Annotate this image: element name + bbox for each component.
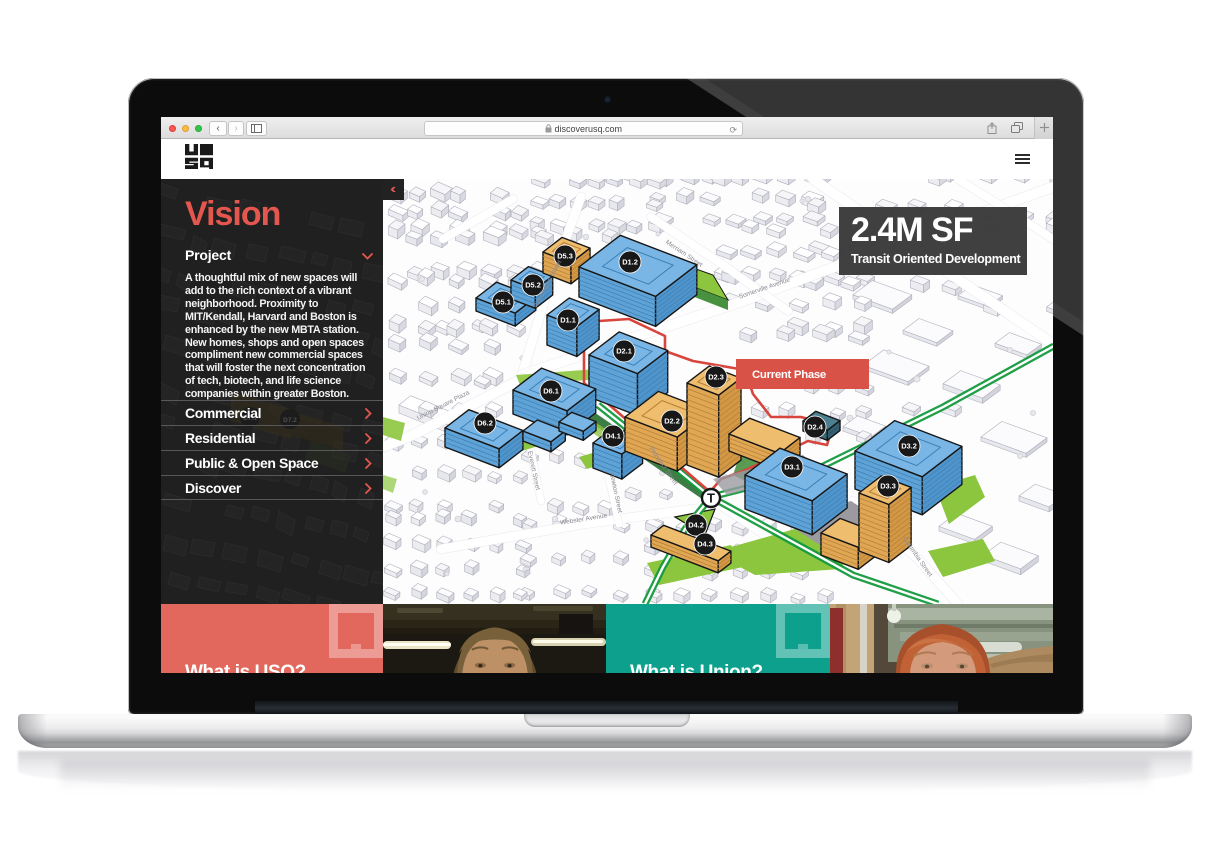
svg-text:D1.1: D1.1 (560, 316, 576, 325)
svg-text:D2.2: D2.2 (664, 417, 680, 426)
svg-text:2.4M SF: 2.4M SF (851, 211, 973, 249)
svg-text:D5.3: D5.3 (557, 252, 573, 261)
svg-text:D2.3: D2.3 (708, 373, 724, 382)
svg-text:D3.1: D3.1 (784, 463, 800, 472)
svg-text:D1.2: D1.2 (622, 258, 638, 267)
svg-text:D2.1: D2.1 (616, 347, 632, 356)
svg-text:D4.2: D4.2 (688, 521, 704, 530)
svg-text:D3.3: D3.3 (880, 482, 896, 491)
svg-text:T: T (707, 491, 715, 506)
svg-text:D6.2: D6.2 (477, 419, 493, 428)
svg-text:D2.4: D2.4 (807, 423, 824, 432)
svg-text:D5.1: D5.1 (495, 298, 511, 307)
svg-text:D3.2: D3.2 (901, 442, 917, 451)
svg-text:D4.3: D4.3 (697, 540, 713, 549)
svg-text:D5.2: D5.2 (525, 281, 541, 290)
svg-text:Transit Oriented Development: Transit Oriented Development (851, 252, 1022, 266)
svg-text:D4.1: D4.1 (605, 432, 621, 441)
svg-text:Current Phase: Current Phase (752, 369, 826, 381)
svg-text:D6.1: D6.1 (543, 387, 559, 396)
